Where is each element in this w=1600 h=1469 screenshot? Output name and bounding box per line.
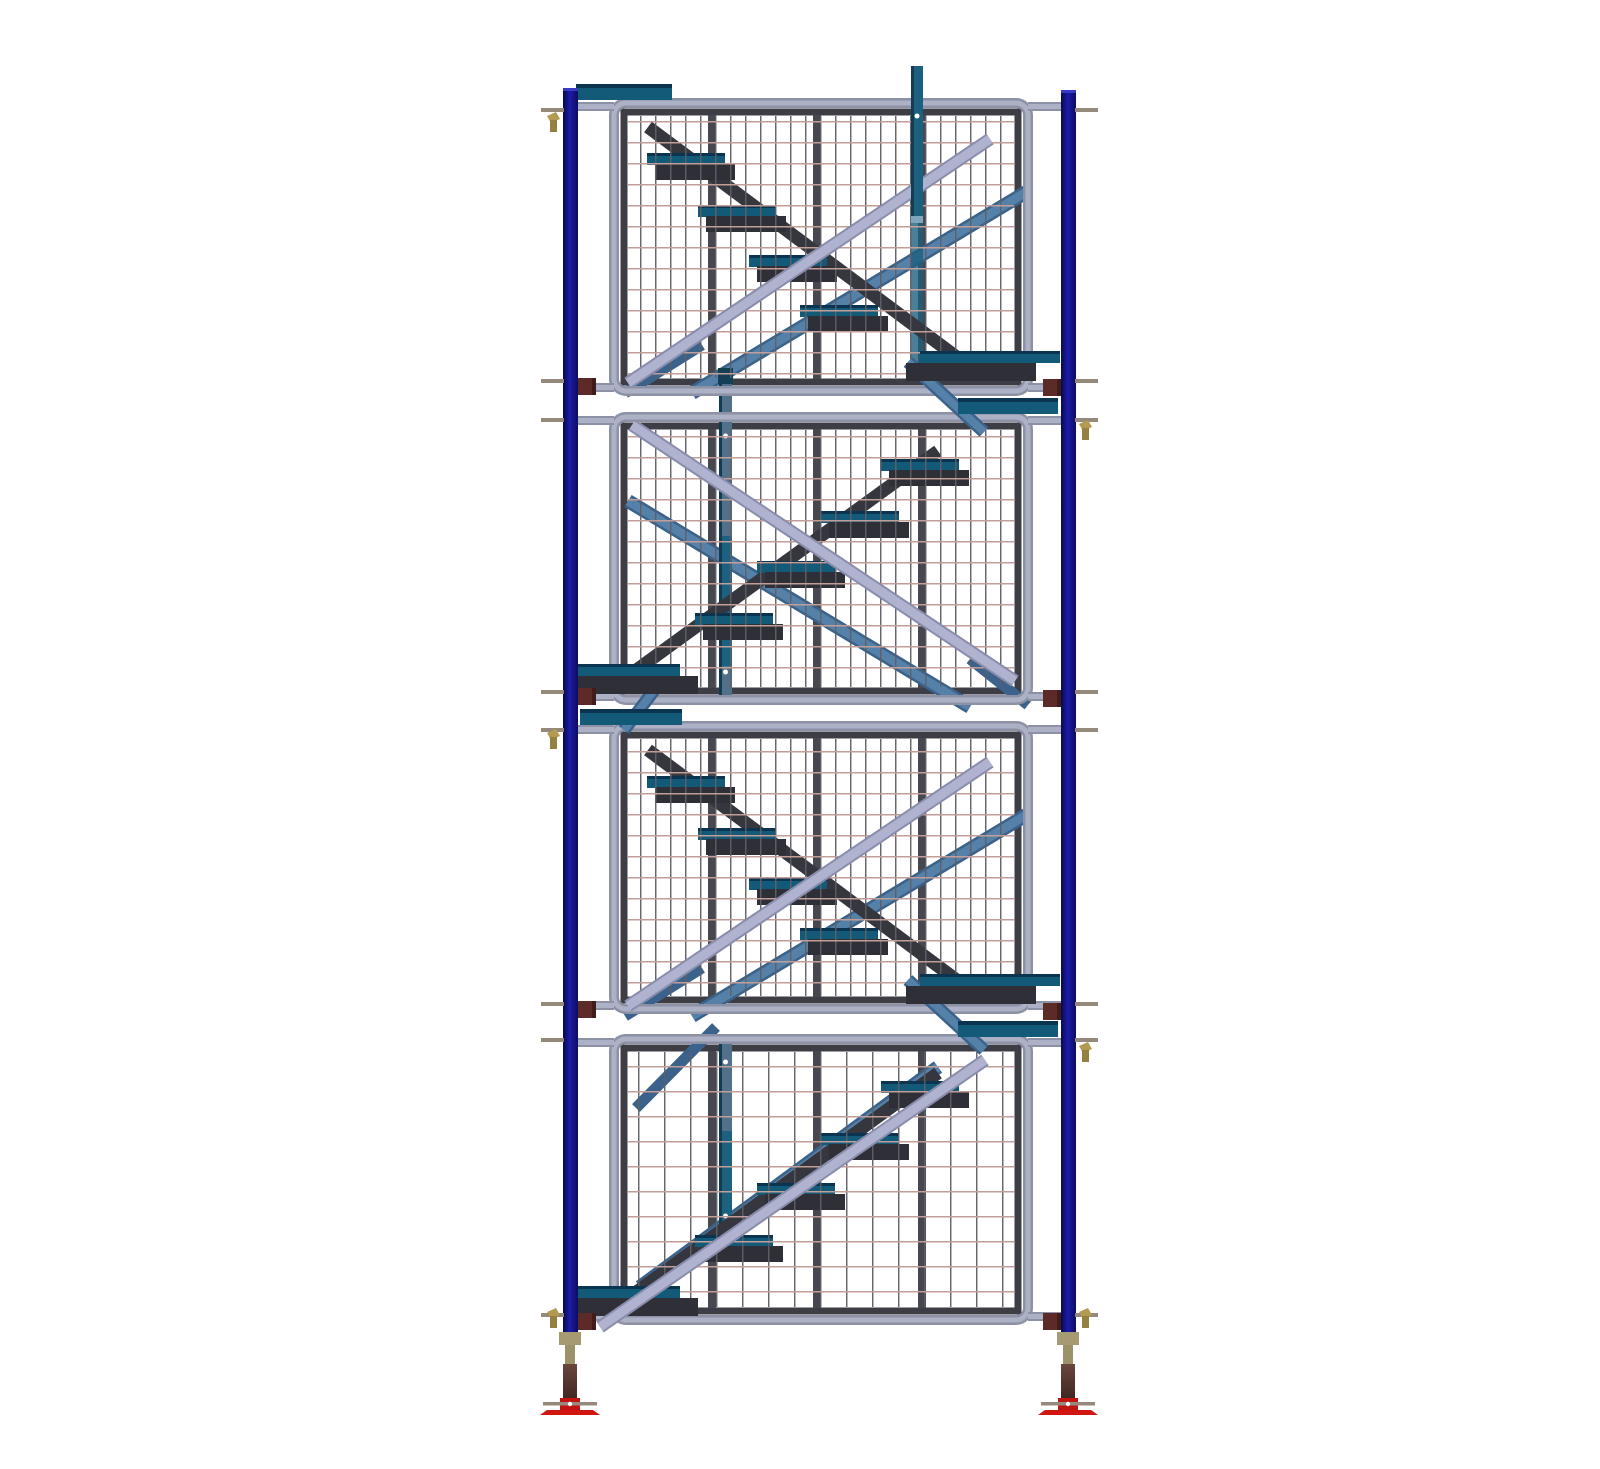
joint-pin-left <box>541 1002 564 1006</box>
scene-canvas <box>40 16 1600 1453</box>
right-standard <box>1061 90 1076 1333</box>
wingnut-body <box>550 120 557 132</box>
jack-pin-hole <box>1066 1402 1070 1406</box>
jack-pin-hole <box>568 1402 572 1406</box>
wingnut-body <box>1082 1316 1089 1328</box>
joint-pin-right <box>1075 1038 1098 1042</box>
landing-bar <box>958 402 1058 414</box>
top-guard-post <box>911 66 923 223</box>
guard-panel-mesh-3 <box>571 725 1071 1010</box>
joint-pin-right <box>1075 379 1098 383</box>
jack-collar-nut <box>559 1332 581 1345</box>
jack-collar-nut <box>1057 1332 1079 1345</box>
joint-pin-left <box>541 1038 564 1042</box>
joint-pin-left <box>541 690 564 694</box>
landing-body <box>906 363 1036 381</box>
wedge-coupler-shade <box>592 378 596 395</box>
landing-bar <box>580 713 682 725</box>
wingnut-body <box>550 1316 557 1328</box>
landing-bar <box>958 1025 1058 1037</box>
wedge-coupler-shade <box>592 688 596 705</box>
landing-nosing <box>920 974 1060 977</box>
wedge-coupler-shade <box>592 1313 596 1330</box>
joint-pin-right <box>1075 728 1098 732</box>
left-standard <box>563 88 578 1333</box>
wedge-coupler-shade <box>1057 1313 1061 1330</box>
joint-pin-left <box>541 418 564 422</box>
wedge-coupler-shade <box>592 1001 596 1018</box>
top-post-hole <box>915 114 920 119</box>
jack-sleeve <box>1063 1345 1073 1364</box>
joint-pin-right <box>1075 1002 1098 1006</box>
landing-bar <box>576 88 672 100</box>
jack-sleeve <box>565 1345 575 1364</box>
landing-nosing <box>920 351 1060 354</box>
base-plate <box>547 1410 593 1415</box>
wedge-coupler-shade <box>1057 379 1061 396</box>
scaffold-stair-tower-render <box>40 16 1600 1453</box>
wedge-coupler-shade <box>1057 1003 1061 1020</box>
right-standard-cap <box>1061 90 1076 93</box>
landing-body <box>906 986 1036 1004</box>
wingnut-body <box>550 737 557 749</box>
jack-screw-spindle <box>563 1364 577 1402</box>
joint-pin-left <box>541 379 564 383</box>
left-standard-cap <box>563 88 578 91</box>
jack-screw-spindle <box>1061 1364 1075 1402</box>
base-plate <box>1045 1410 1091 1415</box>
landing-nosing <box>572 664 680 667</box>
wingnut-body <box>1082 1050 1089 1062</box>
joint-pin-right <box>1075 690 1098 694</box>
top-post-cap <box>911 216 923 223</box>
wingnut-body <box>1082 428 1089 440</box>
joint-pin-right <box>1075 108 1098 112</box>
top-post-shadow-edge <box>911 66 914 216</box>
joint-pin-left <box>541 108 564 112</box>
wedge-coupler-shade <box>1057 690 1061 707</box>
